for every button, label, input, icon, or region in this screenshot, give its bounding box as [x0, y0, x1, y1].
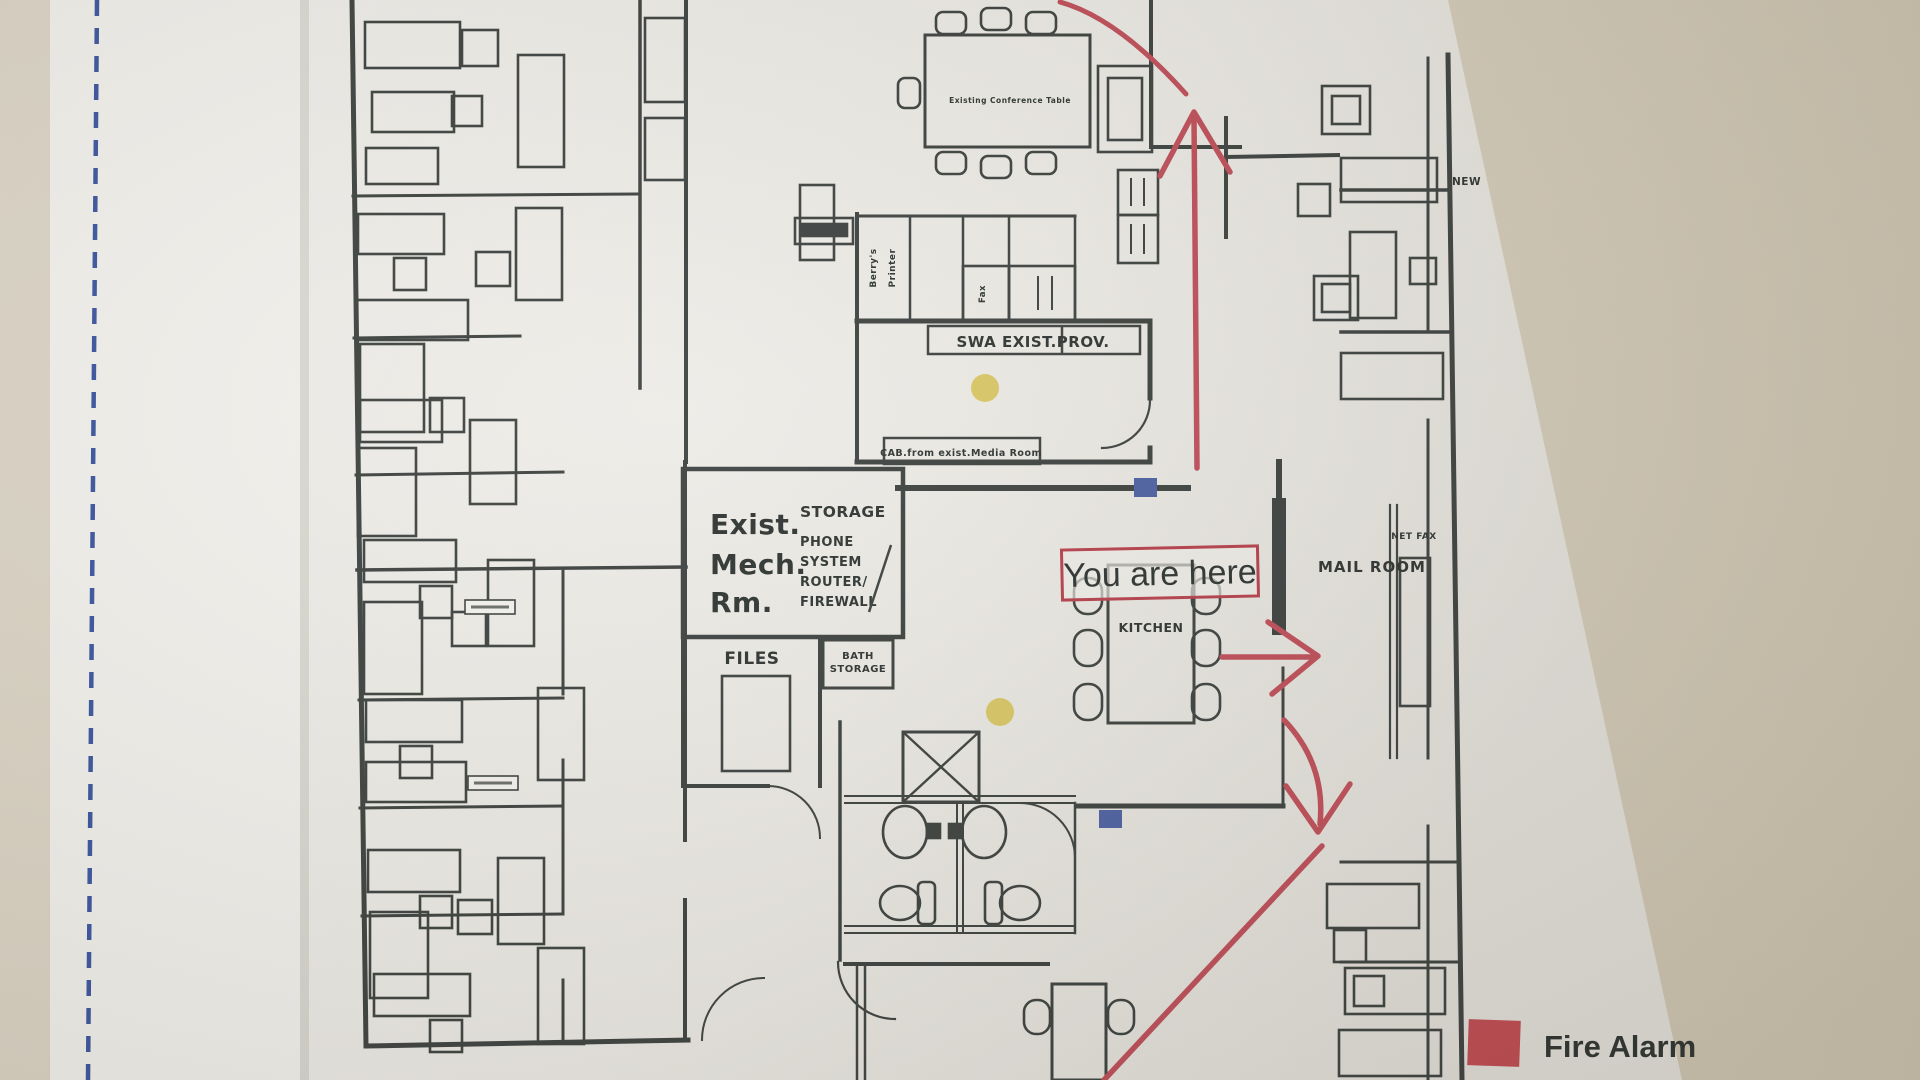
svg-text:Mech.: Mech. — [710, 548, 807, 581]
svg-text:ROUTER/: ROUTER/ — [800, 575, 868, 590]
photo-of-evacuation-floor-plan: SWA EXIST.PROV. CAB.from exist.Media Roo… — [0, 0, 1920, 1080]
svg-text:FIREWALL: FIREWALL — [800, 595, 877, 610]
conference-table-note: Existing Conference Table — [949, 96, 1071, 105]
blue-square-marker — [1134, 478, 1157, 497]
you-are-here-callout: You are here — [1061, 546, 1258, 600]
svg-text:Rm.: Rm. — [710, 586, 773, 619]
kitchen-label: KITCHEN — [1119, 620, 1184, 635]
svg-text:Exist.: Exist. — [710, 508, 800, 541]
fire-alarm-legend-label: Fire Alarm — [1544, 1029, 1696, 1064]
svg-text:SYSTEM: SYSTEM — [800, 555, 862, 570]
svg-text:STORAGE: STORAGE — [800, 503, 886, 521]
svg-text:Berry's: Berry's — [869, 248, 879, 287]
files-room-label: FILES — [724, 649, 779, 669]
swa-room-label: SWA EXIST.PROV. — [956, 333, 1109, 351]
you-are-here-label: You are here — [1063, 553, 1257, 595]
net-fax-label: NET FAX — [1391, 532, 1436, 542]
new-label: NEW — [1452, 176, 1481, 188]
cab-media-room-label: CAB.from exist.Media Room — [880, 448, 1042, 459]
fax-cabinet-label: Fax — [978, 285, 988, 303]
blue-square-marker — [1099, 810, 1122, 828]
svg-text:BATH: BATH — [842, 651, 874, 662]
svg-text:Printer: Printer — [888, 249, 898, 288]
fire-alarm-legend-swatch — [1467, 1019, 1521, 1067]
route-up-line — [1194, 118, 1197, 468]
paper-seam-shadow — [300, 0, 309, 1080]
floor-plan-paper — [300, 0, 1682, 1080]
yellow-highlight-dot — [986, 698, 1014, 726]
svg-text:PHONE: PHONE — [800, 535, 854, 550]
svg-text:STORAGE: STORAGE — [830, 664, 887, 675]
yellow-highlight-dot — [971, 374, 999, 402]
mail-room-label: MAIL ROOM — [1318, 558, 1426, 576]
